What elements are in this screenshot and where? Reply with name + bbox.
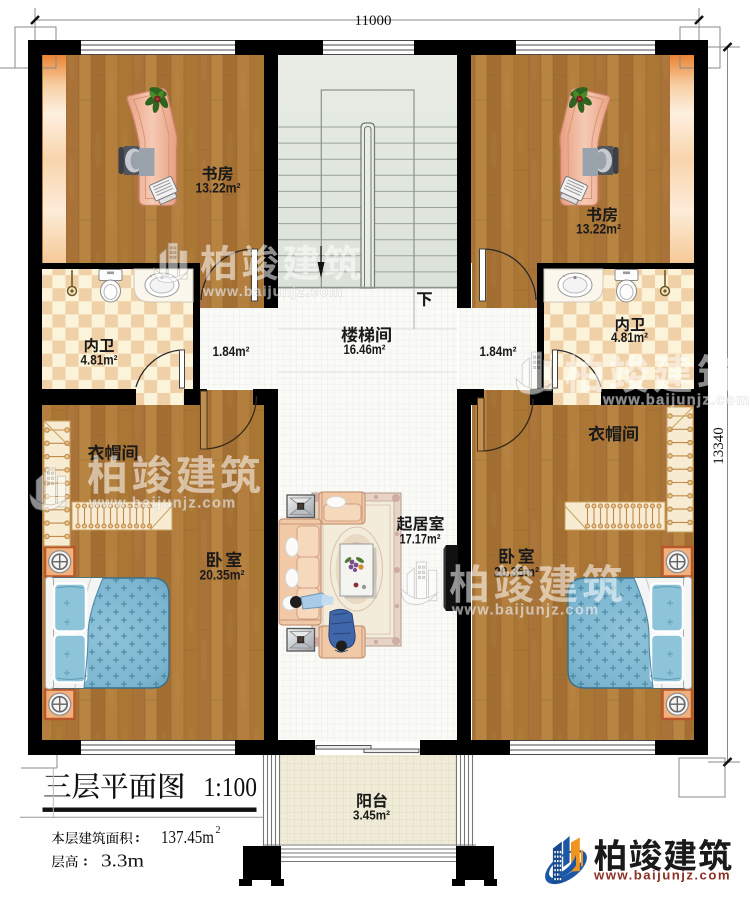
svg-text:3.3m: 3.3m — [101, 851, 144, 871]
svg-text:www.baijunjz.com: www.baijunjz.com — [451, 603, 600, 619]
svg-text:137.45m: 137.45m — [161, 827, 214, 847]
svg-text:www.baijunjz.com: www.baijunjz.com — [593, 868, 731, 883]
svg-text:13340: 13340 — [711, 427, 727, 465]
svg-text:4.81m²: 4.81m² — [81, 352, 118, 368]
svg-text:11000: 11000 — [355, 13, 392, 29]
svg-text::: : — [83, 854, 88, 870]
svg-text:2: 2 — [216, 825, 221, 836]
svg-text:20.35m²: 20.35m² — [200, 567, 245, 583]
svg-text:4.81m²: 4.81m² — [611, 329, 648, 345]
svg-text::: : — [135, 830, 140, 846]
svg-text:13.22m²: 13.22m² — [576, 221, 621, 237]
svg-text:www.baijunjz.com: www.baijunjz.com — [88, 496, 237, 512]
svg-text:13.22m²: 13.22m² — [196, 180, 241, 196]
svg-text:www.baijunjz.com: www.baijunjz.com — [602, 393, 750, 409]
svg-text:1.84m²: 1.84m² — [213, 343, 250, 359]
svg-text:1:100: 1:100 — [204, 772, 258, 802]
svg-text:17.17m²: 17.17m² — [400, 531, 441, 547]
svg-text:1.84m²: 1.84m² — [480, 343, 517, 359]
svg-text:www.baijunjz.com: www.baijunjz.com — [202, 283, 343, 299]
svg-text:3.45m²: 3.45m² — [353, 808, 391, 823]
svg-text:16.46m²: 16.46m² — [344, 341, 386, 357]
